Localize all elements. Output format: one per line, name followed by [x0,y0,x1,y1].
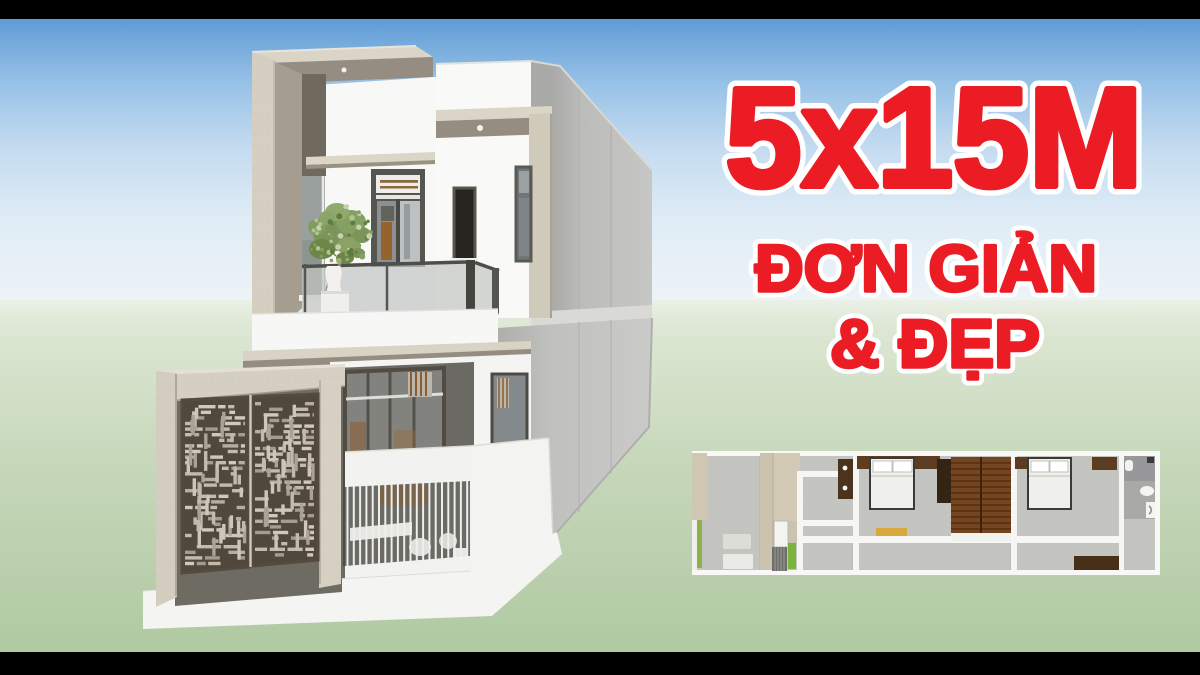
svg-text:& ĐẸP: & ĐẸP [830,306,1040,382]
svg-text:ĐƠN GIẢN: ĐƠN GIẢN [755,231,1097,305]
svg-text:5x15M: 5x15M [726,58,1143,216]
